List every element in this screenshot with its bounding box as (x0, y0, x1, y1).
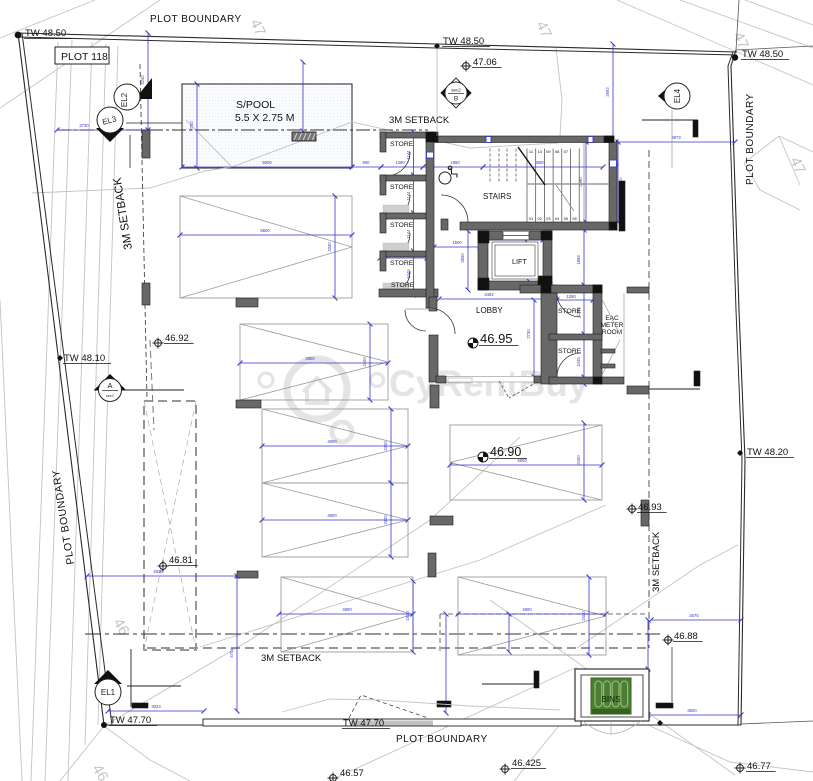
svg-text:3M SETBACK: 3M SETBACK (261, 653, 322, 664)
svg-text:2400: 2400 (383, 441, 388, 451)
svg-text:1500: 1500 (452, 240, 462, 245)
svg-text:4704: 4704 (229, 648, 234, 658)
svg-text:STORE: STORE (391, 282, 415, 289)
svg-text:TW 47.70: TW 47.70 (110, 715, 151, 726)
svg-text:2750: 2750 (189, 121, 194, 131)
svg-text:03: 03 (546, 216, 551, 221)
svg-text:3M SETBACK: 3M SETBACK (389, 115, 450, 126)
svg-text:PLOT BOUNDARY: PLOT BOUNDARY (396, 734, 488, 745)
svg-text:PLOT 118: PLOT 118 (61, 51, 108, 63)
svg-text:2400: 2400 (405, 611, 410, 621)
svg-text:STORE: STORE (390, 141, 414, 148)
svg-text:4800: 4800 (305, 356, 315, 361)
svg-text:2692: 2692 (605, 87, 610, 97)
svg-text:02: 02 (537, 216, 542, 221)
svg-text:3492: 3492 (484, 292, 494, 297)
svg-text:4800: 4800 (342, 607, 352, 612)
svg-text:4800: 4800 (327, 513, 337, 518)
svg-text:46.90: 46.90 (490, 445, 521, 459)
svg-text:2850: 2850 (460, 253, 465, 263)
svg-text:STORE: STORE (390, 222, 414, 229)
svg-text:EL4: EL4 (673, 88, 682, 103)
svg-text:TW 47.70: TW 47.70 (343, 718, 384, 729)
svg-text:46.88: 46.88 (674, 631, 698, 642)
svg-text:3730: 3730 (79, 123, 89, 128)
svg-text:STORE: STORE (558, 348, 582, 355)
svg-text:EAC: EAC (605, 315, 619, 322)
svg-text:STORE: STORE (390, 184, 414, 191)
svg-text:2400: 2400 (576, 455, 581, 465)
svg-text:EL2: EL2 (120, 92, 129, 107)
svg-text:LOBBY: LOBBY (476, 306, 503, 315)
svg-text:sec2: sec2 (451, 88, 461, 93)
svg-text:A: A (107, 381, 112, 390)
svg-text:1360: 1360 (395, 160, 405, 165)
svg-text:10: 10 (537, 149, 542, 154)
svg-text:PLOT BOUNDARY: PLOT BOUNDARY (745, 93, 756, 185)
svg-text:1045: 1045 (576, 357, 581, 367)
svg-text:09: 09 (546, 149, 551, 154)
svg-text:46.57: 46.57 (340, 768, 364, 779)
svg-text:4800: 4800 (327, 439, 337, 444)
svg-text:PLOT BOUNDARY: PLOT BOUNDARY (150, 14, 242, 25)
svg-text:1868: 1868 (576, 255, 581, 265)
svg-text:46.93: 46.93 (638, 502, 662, 513)
svg-text:5.5 X 2.75 M: 5.5 X 2.75 M (235, 112, 295, 124)
svg-text:2400: 2400 (362, 357, 367, 367)
svg-text:2590: 2590 (578, 177, 583, 187)
svg-text:BINS: BINS (601, 695, 621, 704)
svg-text:3023: 3023 (151, 704, 161, 709)
svg-text:TW 48.50: TW 48.50 (25, 28, 66, 39)
svg-text:04: 04 (555, 216, 560, 221)
svg-text:08: 08 (555, 149, 560, 154)
svg-text:3330: 3330 (327, 242, 332, 252)
svg-text:01: 01 (529, 216, 534, 221)
svg-text:LIFT: LIFT (512, 257, 527, 266)
svg-text:4800: 4800 (522, 607, 532, 612)
svg-text:TW 48.50: TW 48.50 (742, 49, 783, 60)
svg-text:5500: 5500 (260, 228, 270, 233)
svg-text:STORE: STORE (390, 260, 414, 267)
svg-text:2400: 2400 (581, 611, 586, 621)
svg-text:STAIRS: STAIRS (483, 192, 511, 201)
svg-text:900: 900 (363, 160, 371, 165)
svg-text:05: 05 (564, 216, 569, 221)
svg-text:4838: 4838 (153, 569, 163, 574)
svg-text:3600: 3600 (687, 708, 697, 713)
svg-text:5500: 5500 (262, 160, 272, 165)
svg-text:1260: 1260 (566, 294, 576, 299)
svg-text:07: 07 (564, 149, 569, 154)
svg-text:47.06: 47.06 (473, 57, 497, 68)
svg-text:46.95: 46.95 (480, 331, 513, 346)
svg-text:sec1: sec1 (106, 394, 114, 398)
svg-text:46.81: 46.81 (169, 555, 193, 566)
svg-text:B: B (454, 96, 458, 103)
svg-text:S/POOL: S/POOL (236, 99, 275, 111)
svg-text:TW 48.10: TW 48.10 (64, 353, 105, 364)
svg-text:2400: 2400 (383, 515, 388, 525)
svg-text:EL1: EL1 (101, 688, 116, 697)
svg-text:46.92: 46.92 (165, 333, 189, 344)
svg-text:METER: METER (601, 322, 624, 329)
svg-text:3873: 3873 (671, 135, 681, 140)
svg-text:06: 06 (572, 216, 577, 221)
svg-text:3900: 3900 (535, 160, 545, 165)
svg-text:1950: 1950 (450, 160, 460, 165)
svg-text:TW 48.20: TW 48.20 (747, 447, 788, 458)
svg-text:TW 48.50: TW 48.50 (443, 36, 484, 47)
svg-text:46.77: 46.77 (747, 761, 771, 772)
svg-text:2730: 2730 (526, 329, 531, 339)
svg-text:46.425: 46.425 (512, 758, 541, 769)
svg-text:3M SETBACK: 3M SETBACK (651, 531, 662, 592)
svg-text:2675: 2675 (689, 613, 699, 618)
svg-text:3240: 3240 (140, 75, 145, 85)
